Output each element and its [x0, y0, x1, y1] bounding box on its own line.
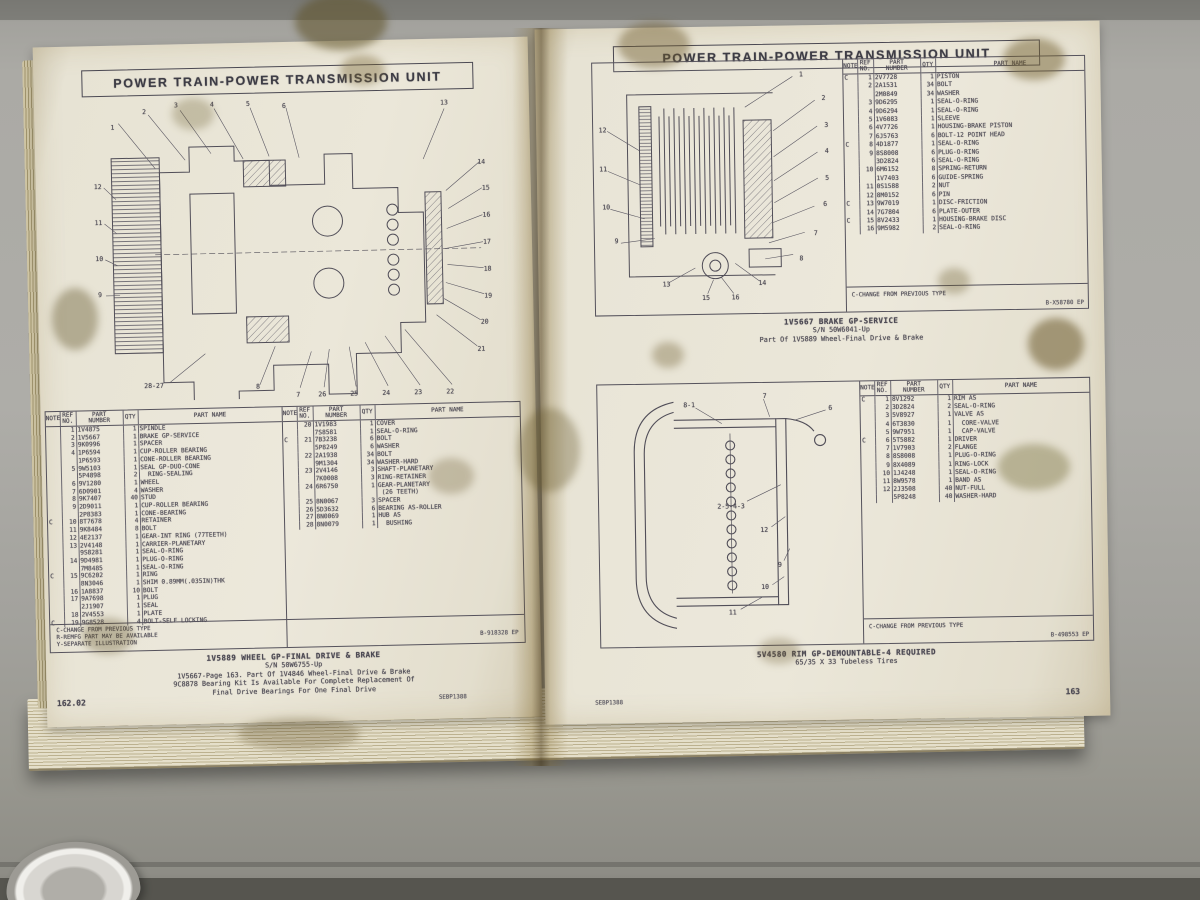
right-page-number: 163 [1066, 687, 1081, 696]
photo-background: POWER TRAIN-POWER TRANSMISSION UNIT [0, 0, 1200, 900]
table-cell [861, 404, 875, 412]
diagram-callout: 12 [94, 183, 102, 191]
table-cell: 1 [874, 395, 890, 404]
diagram-callout: 21 [477, 345, 485, 353]
col-part-number: PART NUMBER [890, 380, 937, 395]
table-cell: 1 [937, 394, 952, 403]
table-cell: 1 [938, 420, 953, 428]
table-cell [862, 470, 876, 478]
table-cell: 1 [939, 469, 954, 477]
table-cell: 9M5982 [876, 225, 923, 234]
diagram-callout: 7 [296, 391, 300, 399]
table-cell [844, 125, 858, 134]
brake-drawing [594, 64, 844, 310]
right-page: POWER TRAIN-POWER TRANSMISSION UNIT [535, 21, 1111, 725]
table-cell: 1 [921, 115, 936, 124]
table-cell: 1 [921, 107, 936, 116]
diagram-callout: 7 [763, 392, 767, 400]
diagram-callout: 1 [799, 70, 803, 78]
left-page-title: POWER TRAIN-POWER TRANSMISSION UNIT [113, 69, 441, 90]
parts-table-left-group: NOTE REF NO. PART NUMBER QTY PART NAME 1… [46, 407, 288, 652]
table-cell [861, 454, 875, 462]
diagram-callout: 12 [760, 526, 768, 534]
table-cell: 40 [939, 485, 954, 493]
table-cell: 1 [938, 452, 953, 460]
table-cell: 21 [297, 437, 313, 445]
table-cell: 1 [920, 73, 935, 82]
col-part-number: PART NUMBER [873, 58, 920, 73]
table-cell: 15 [63, 573, 79, 581]
table-cell: 1 [125, 533, 140, 541]
rim-drawing [603, 387, 859, 639]
table-cell: 1 [126, 579, 141, 587]
diagram-callout: 25 [350, 389, 358, 397]
table-cell [846, 226, 860, 235]
table-cell [844, 116, 858, 125]
footnote-divider [864, 615, 1093, 620]
brake-footnote: C-CHANGE FROM PREVIOUS TYPE [852, 291, 946, 299]
table-cell [862, 495, 876, 503]
table-cell: 1 [360, 420, 375, 429]
table-cell: C [861, 437, 875, 445]
table-cell: 2 [923, 224, 938, 233]
table-cell: 6 [858, 125, 874, 134]
table-cell: 10 [859, 167, 875, 176]
table-cell: 1 [60, 426, 76, 435]
brake-group-box: 12345678121110913151614 NOTE REF NO. PAR… [591, 55, 1089, 317]
table-cell: 34 [361, 451, 376, 459]
table-cell: 3 [361, 474, 376, 482]
col-note: NOTE [46, 412, 60, 427]
diagram-callout: 28-27 [144, 382, 164, 390]
table-cell: 1 [923, 216, 938, 225]
diagram-callout: 11 [599, 165, 607, 173]
diagram-callout: 8 [799, 254, 803, 262]
diagram-callout: 2 [142, 108, 146, 116]
diagram-callout: 6 [828, 404, 832, 412]
table-cell: WASHER-HARD [954, 491, 1091, 501]
brake-caption: 1V5667 BRAKE GP-SERVICE S/N 50W6041-Up P… [595, 313, 1087, 347]
diagram-callout: 6 [823, 200, 827, 208]
diagram-callout: 14 [477, 157, 485, 165]
table-cell: 17 [64, 596, 80, 604]
col-note: NOTE [843, 59, 857, 74]
table-cell: 6 [875, 437, 891, 445]
table-cell: 2 [922, 182, 937, 191]
diagram-callout: 16 [482, 211, 490, 219]
diagram-callout: 9 [778, 561, 782, 569]
table-cell [845, 158, 859, 167]
diagram-callout: 18 [484, 264, 492, 272]
table-cell: 9 [875, 462, 891, 470]
diagram-callout: 3 [824, 120, 828, 128]
table-cell [844, 133, 858, 142]
left-page-caption: 1V5889 WHEEL GP-FINAL DRIVE & BRAKE S/N … [46, 647, 542, 701]
col-qty: QTY [937, 380, 952, 395]
table-cell [862, 486, 876, 494]
table-cell: 13 [859, 200, 875, 209]
table-cell: 2 [875, 404, 891, 412]
col-ref-no: REF NO. [297, 406, 313, 421]
table-footnotes: C-CHANGE FROM PREVIOUS TYPE R-REMFG PART… [56, 626, 158, 649]
table-cell: 20 [297, 421, 313, 430]
table-cell [844, 91, 858, 100]
table-cell: 1 [922, 199, 937, 208]
table-cell: 1 [362, 520, 377, 528]
table-cell: 1 [921, 140, 936, 149]
diagram-callout: 5 [825, 174, 829, 182]
table-cell: 6 [922, 157, 937, 166]
table-cell: 8N0079 [315, 521, 362, 530]
wheel-final-drive-diagram: 123456131415161718192021121110928-278726… [92, 95, 498, 402]
diagram-callout: 5 [246, 100, 250, 108]
brake-diagram: 12345678121110913151614 [594, 64, 844, 310]
table-cell: 3 [362, 497, 377, 505]
table-cell: 1 [126, 556, 141, 564]
table-cell: 1 [124, 456, 139, 464]
table-cell [845, 192, 859, 201]
table-cell: C [844, 142, 858, 151]
table-cell: 1 [921, 98, 936, 107]
table-cell: 6 [360, 443, 375, 451]
diagram-callout: 19 [484, 291, 492, 299]
diagram-callout: 20 [481, 318, 489, 326]
diagram-callout: 10 [761, 583, 769, 591]
left-page-number: 162.02 [57, 698, 86, 708]
table-cell: 1 [857, 74, 873, 83]
table-cell: 11 [859, 183, 875, 192]
table-cell: 14 [859, 209, 875, 218]
table-cell: 6 [61, 481, 77, 489]
col-qty: QTY [360, 405, 375, 420]
diagram-callout: 8-1 [683, 401, 695, 409]
table-cell: 2 [938, 444, 953, 452]
rim-group-box: 8-1762-5-4-31291011 NOTE REF NO. PART NU… [596, 377, 1094, 649]
table-cell: SEAL-O-RING [938, 222, 1087, 233]
table-cell: 4 [858, 108, 874, 117]
table-cell: 11 [62, 527, 78, 535]
table-cell: 4 [60, 450, 76, 458]
footnote-divider [847, 283, 1088, 288]
col-qty: QTY [123, 410, 138, 425]
table-cell [845, 175, 859, 184]
diagram-callout: 7 [814, 229, 818, 237]
diagram-callout: 13 [662, 280, 670, 288]
table-cell: 6 [922, 191, 937, 200]
table-cell: 13 [62, 542, 78, 550]
diagram-callout: 24 [382, 389, 390, 397]
table-cell: 1 [361, 482, 376, 490]
table-cell: 16 [860, 225, 876, 234]
rim-diagram: 8-1762-5-4-31291011 [603, 387, 859, 639]
diagram-callout: 26 [318, 390, 326, 398]
table-cell: 4 [875, 421, 891, 429]
table-cell: 8 [858, 141, 874, 150]
table-cell: 6 [922, 149, 937, 158]
table-cell [861, 445, 875, 453]
col-part-number: PART NUMBER [76, 411, 123, 427]
table-cell: 2 [857, 83, 873, 92]
diagram-callout: 2 [821, 94, 825, 102]
table-cell: C [860, 396, 874, 405]
col-part-number: PART NUMBER [313, 405, 360, 421]
left-page: POWER TRAIN-POWER TRANSMISSION UNIT [33, 37, 543, 728]
table-cell: 1 [123, 448, 138, 456]
table-cell: 1 [939, 477, 954, 485]
table-cell: 12 [876, 486, 892, 494]
table-cell: 23 [298, 468, 314, 476]
diagram-callout: 4 [210, 101, 214, 109]
diagram-callout: 3 [174, 101, 178, 109]
table-cell: 1 [127, 602, 142, 610]
table-cell: 40 [939, 493, 954, 501]
table-cell [858, 91, 874, 100]
table-cell [861, 462, 875, 470]
table-cell: 24 [298, 483, 314, 491]
col-note: NOTE [860, 381, 874, 396]
table-cell: 7 [858, 133, 874, 142]
table-cell: 14 [63, 558, 79, 566]
diagram-callout: 10 [95, 255, 103, 263]
table-cell: 8 [125, 525, 140, 533]
table-cell: 1 [938, 428, 953, 436]
table-cell: 34 [920, 82, 935, 91]
table-cell: 12 [859, 192, 875, 201]
diagram-callout: 17 [483, 238, 491, 246]
right-form-code: SEBP1388 [595, 700, 623, 706]
table-cell [876, 494, 892, 502]
col-ref-no: REF NO. [60, 412, 76, 427]
diagram-callout: 13 [440, 98, 448, 106]
diagram-callout: 9 [615, 237, 619, 245]
diagram-callout: 22 [446, 387, 454, 395]
tape-roll [4, 839, 142, 900]
col-ref-no: REF NO. [874, 381, 890, 396]
col-note: NOTE [283, 407, 297, 422]
table-cell: 1 [938, 436, 953, 444]
parts-table-right-group: NOTE REF NO. PART NUMBER QTY PART NAME 2… [283, 402, 525, 647]
table-cell: 6 [922, 174, 937, 183]
diagram-callout: 6 [282, 102, 286, 110]
table-cell [861, 421, 875, 429]
table-cell: 28 [299, 522, 315, 530]
col-qty: QTY [920, 58, 935, 73]
diagram-callout: 8 [256, 383, 260, 391]
wheel-final-drive-drawing [92, 95, 498, 402]
col-ref-no: REF NO. [857, 59, 873, 74]
table-cell: C [846, 217, 860, 226]
table-cell: 9 [859, 150, 875, 159]
drawing-code: B-498553 EP [1051, 632, 1089, 639]
table-cell: 8 [875, 453, 891, 461]
table-cell: 5 [61, 465, 77, 473]
table-cell: 22 [298, 452, 314, 460]
table-cell: C [843, 74, 857, 83]
table-cell [844, 100, 858, 109]
table-cell: 1 [123, 425, 138, 434]
table-cell [845, 167, 859, 176]
table-cell [285, 522, 299, 530]
background-top-band [0, 0, 1200, 20]
table-cell: 1 [938, 411, 953, 419]
table-cell [862, 478, 876, 486]
rim-footnote: C-CHANGE FROM PREVIOUS TYPE [869, 623, 963, 631]
left-form-code: SEBP1388 [439, 694, 467, 701]
table-cell: 12 [62, 534, 78, 542]
table-cell: 5 [875, 429, 891, 437]
rim-parts-table: NOTE REF NO. PART NUMBER QTY PART NAME C… [859, 378, 1093, 644]
table-cell [859, 175, 875, 184]
table-cell [844, 108, 858, 117]
diagram-callout: 16 [732, 294, 740, 302]
table-cell: 7 [875, 445, 891, 453]
diagram-callout: 11 [729, 609, 737, 617]
diagram-callout: 14 [758, 279, 766, 287]
rim-caption: 5V4580 RIM GP-DEMOUNTABLE-4 REQUIRED 65/… [600, 645, 1092, 670]
table-cell: 11 [876, 478, 892, 486]
diagram-callout: 15 [482, 184, 490, 192]
table-cell: 5 [858, 116, 874, 125]
table-cell: C [845, 200, 859, 209]
surface-edge-line [0, 862, 1200, 867]
table-cell [861, 413, 875, 421]
table-cell [845, 184, 859, 193]
table-cell: 1 [921, 124, 936, 133]
table-cell: 6 [921, 132, 936, 141]
drawing-code: B-918328 EP [480, 630, 519, 637]
table-cell: 3 [858, 99, 874, 108]
table-cell: 10 [876, 470, 892, 478]
table-cell: 34 [921, 90, 936, 99]
table-cell: 25 [299, 498, 315, 506]
brake-parts-table: NOTE REF NO. PART NUMBER QTY PART NAME C… [842, 56, 1088, 312]
table-cell [845, 209, 859, 218]
diagram-callout: 15 [702, 294, 710, 302]
table-cell: 15 [860, 217, 876, 226]
diagram-callout: 9 [98, 291, 102, 299]
table-cell: 9 [62, 504, 78, 512]
background-bottom-band [0, 878, 1200, 900]
table-cell: 3 [875, 412, 891, 420]
table-cell: 8 [922, 166, 937, 175]
diagram-callout: 10 [602, 204, 610, 212]
table-cell [843, 83, 857, 92]
diagram-callout: 11 [94, 219, 102, 227]
diagram-callout: 2-5-4-3 [717, 502, 745, 510]
table-cell: 1 [127, 610, 142, 618]
left-page-header-box: POWER TRAIN-POWER TRANSMISSION UNIT [81, 62, 473, 98]
table-cell: 18 [64, 611, 80, 619]
table-cell: 6 [922, 208, 937, 217]
table-cell: 1 [124, 479, 139, 487]
diagram-callout: 23 [414, 388, 422, 396]
table-cell [861, 429, 875, 437]
table-cell [845, 150, 859, 159]
table-cell: 2 [937, 403, 952, 411]
table-cell [859, 158, 875, 167]
diagram-callout: 4 [825, 147, 829, 155]
diagram-callout: 1 [110, 124, 114, 132]
left-parts-table: NOTE REF NO. PART NUMBER QTY PART NAME 1… [45, 401, 526, 653]
diagram-callout: 12 [599, 126, 607, 134]
drawing-code: B-X58780 EP [1046, 300, 1084, 307]
table-cell: 1 [125, 502, 140, 510]
table-cell: 5P8248 [892, 494, 939, 503]
table-cell: 1 [938, 461, 953, 469]
